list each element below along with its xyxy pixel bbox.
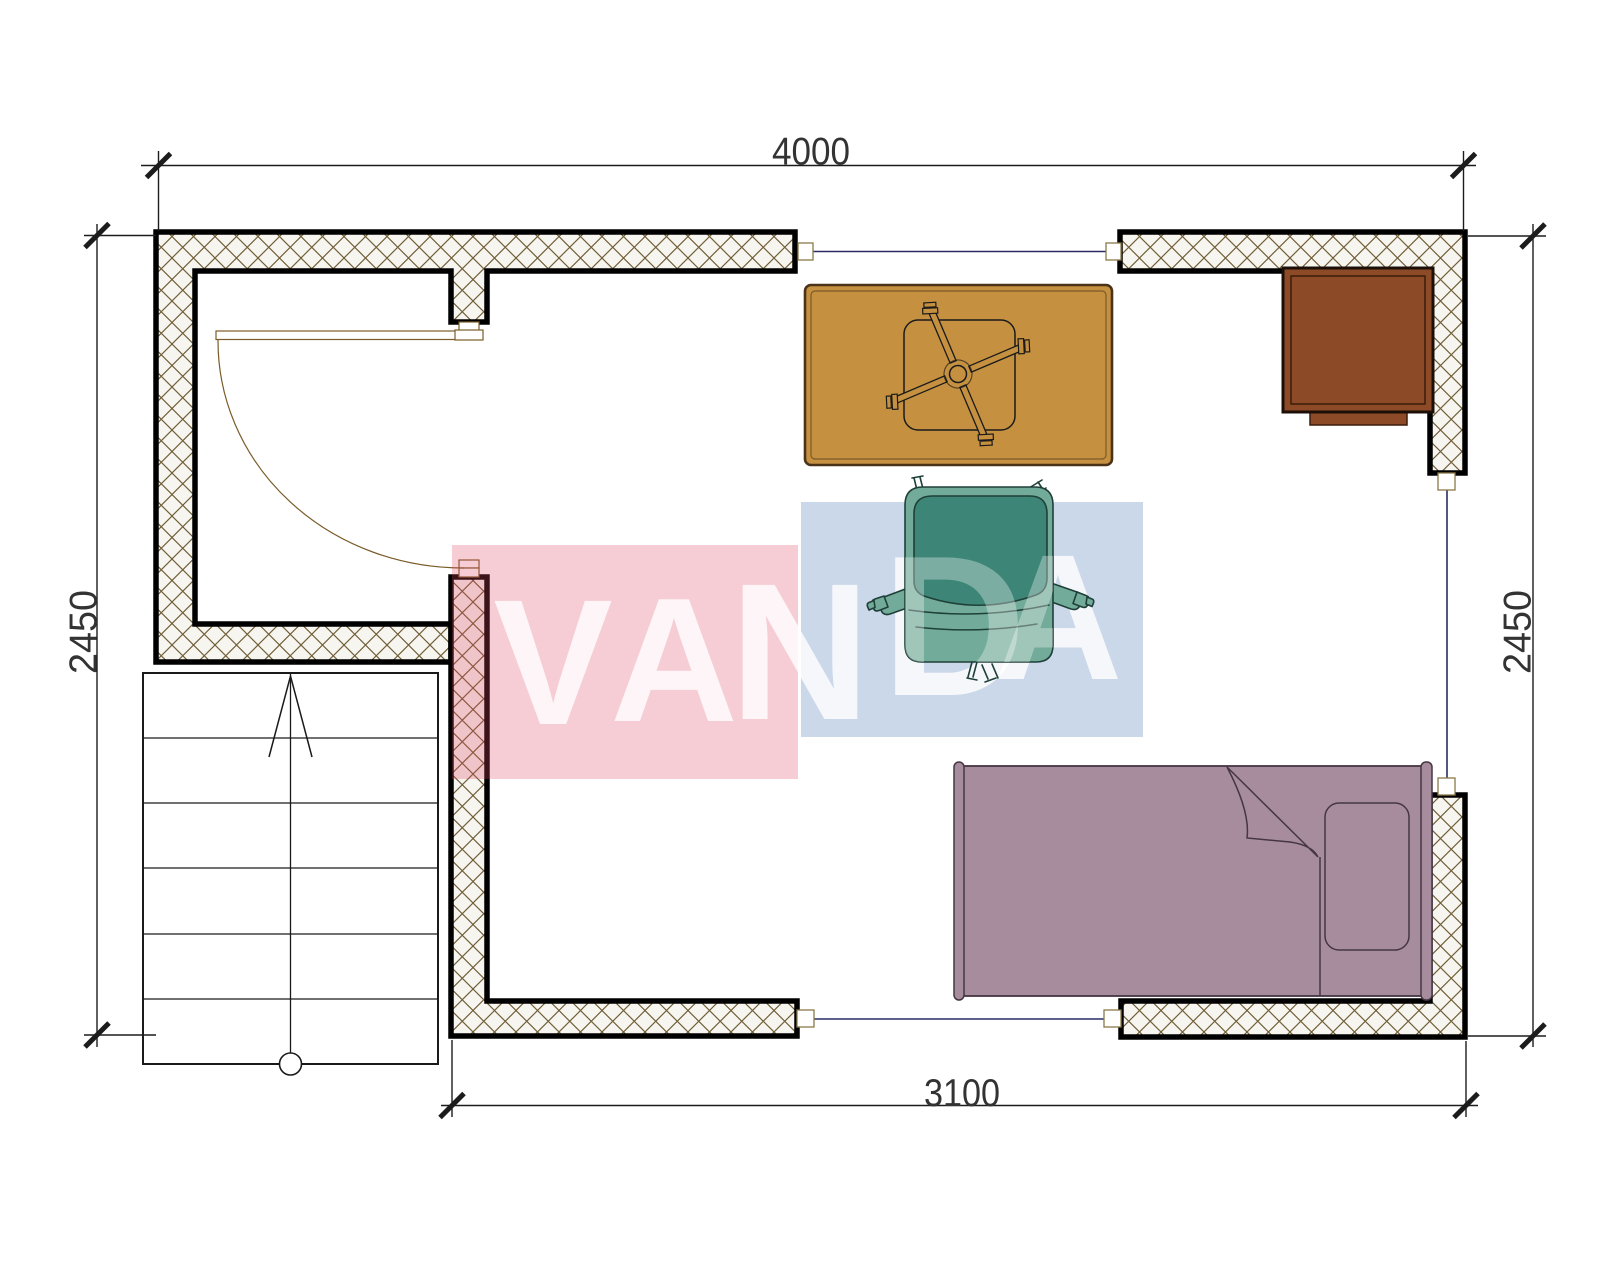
svg-text:2450: 2450	[63, 590, 106, 674]
svg-text:3100: 3100	[924, 1072, 1000, 1115]
svg-text:A: A	[610, 561, 738, 759]
svg-text:2450: 2450	[1497, 590, 1540, 674]
svg-text:V: V	[493, 562, 612, 762]
svg-text:4000: 4000	[772, 131, 850, 174]
svg-text:N: N	[730, 543, 871, 761]
